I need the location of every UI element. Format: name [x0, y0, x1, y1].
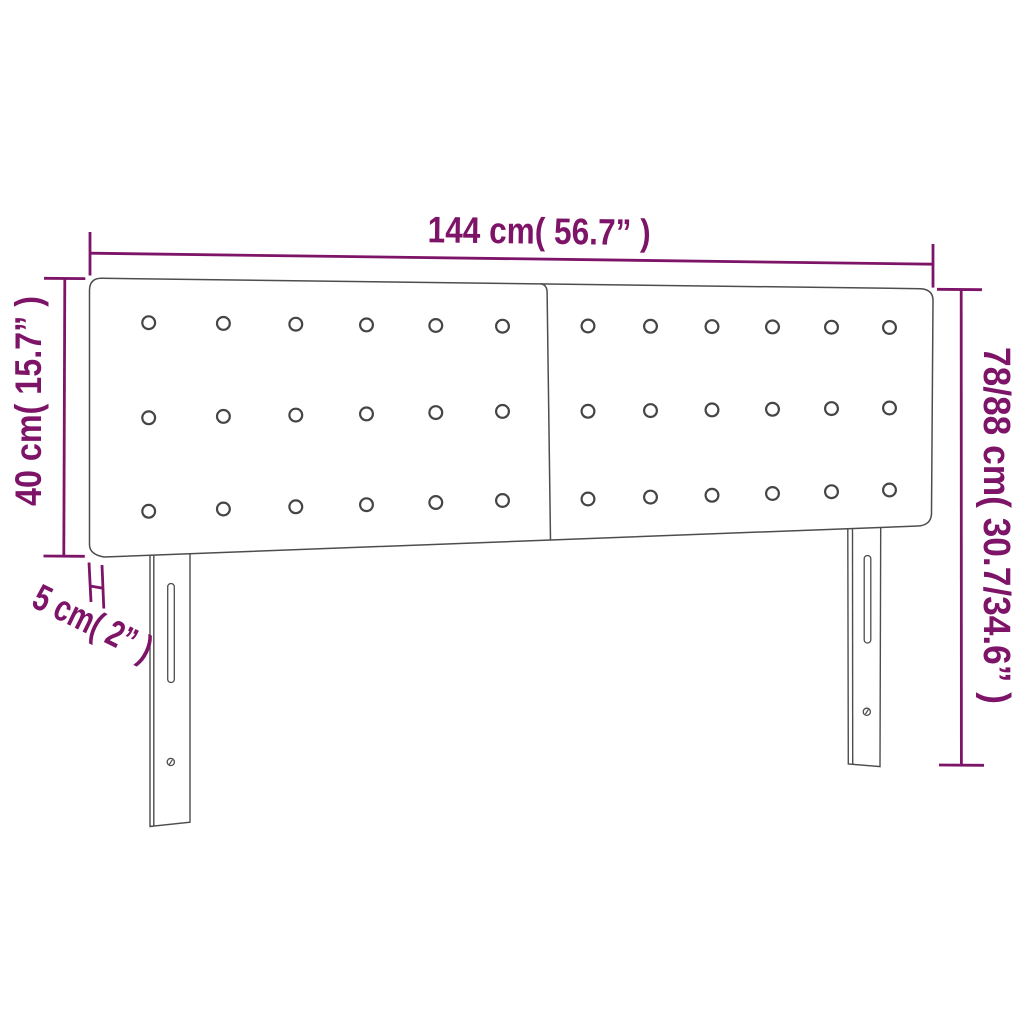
- svg-text:40 cm( 15.7” ): 40 cm( 15.7” ): [8, 296, 49, 506]
- svg-text:78/88 cm( 30.7/34.6” ): 78/88 cm( 30.7/34.6” ): [975, 347, 1017, 704]
- svg-text:144 cm( 56.7” ): 144 cm( 56.7” ): [427, 209, 651, 253]
